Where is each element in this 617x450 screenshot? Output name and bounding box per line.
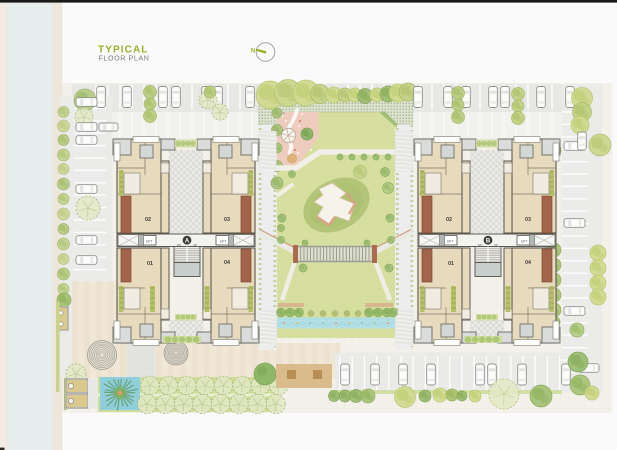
svg-text:B: B bbox=[486, 239, 491, 245]
svg-text:04: 04 bbox=[525, 260, 531, 266]
svg-text:02: 02 bbox=[145, 217, 151, 223]
svg-text:DN: DN bbox=[478, 243, 482, 247]
svg-text:LIFT: LIFT bbox=[220, 239, 227, 243]
svg-text:UP: UP bbox=[193, 243, 197, 247]
svg-text:01: 01 bbox=[448, 261, 454, 267]
svg-text:01: 01 bbox=[147, 261, 153, 267]
svg-text:DN: DN bbox=[177, 243, 181, 247]
svg-text:A: A bbox=[185, 239, 190, 245]
svg-text:02: 02 bbox=[446, 217, 452, 223]
svg-text:LIFT: LIFT bbox=[521, 239, 528, 243]
svg-text:04: 04 bbox=[224, 260, 230, 266]
svg-text:03: 03 bbox=[224, 217, 230, 223]
svg-text:FLOOR PLAN: FLOOR PLAN bbox=[99, 53, 150, 62]
svg-text:03: 03 bbox=[525, 217, 531, 223]
svg-text:N: N bbox=[251, 49, 255, 55]
svg-text:UP: UP bbox=[494, 243, 498, 247]
svg-text:LIFT: LIFT bbox=[447, 239, 454, 243]
svg-text:LIFT: LIFT bbox=[146, 239, 153, 243]
